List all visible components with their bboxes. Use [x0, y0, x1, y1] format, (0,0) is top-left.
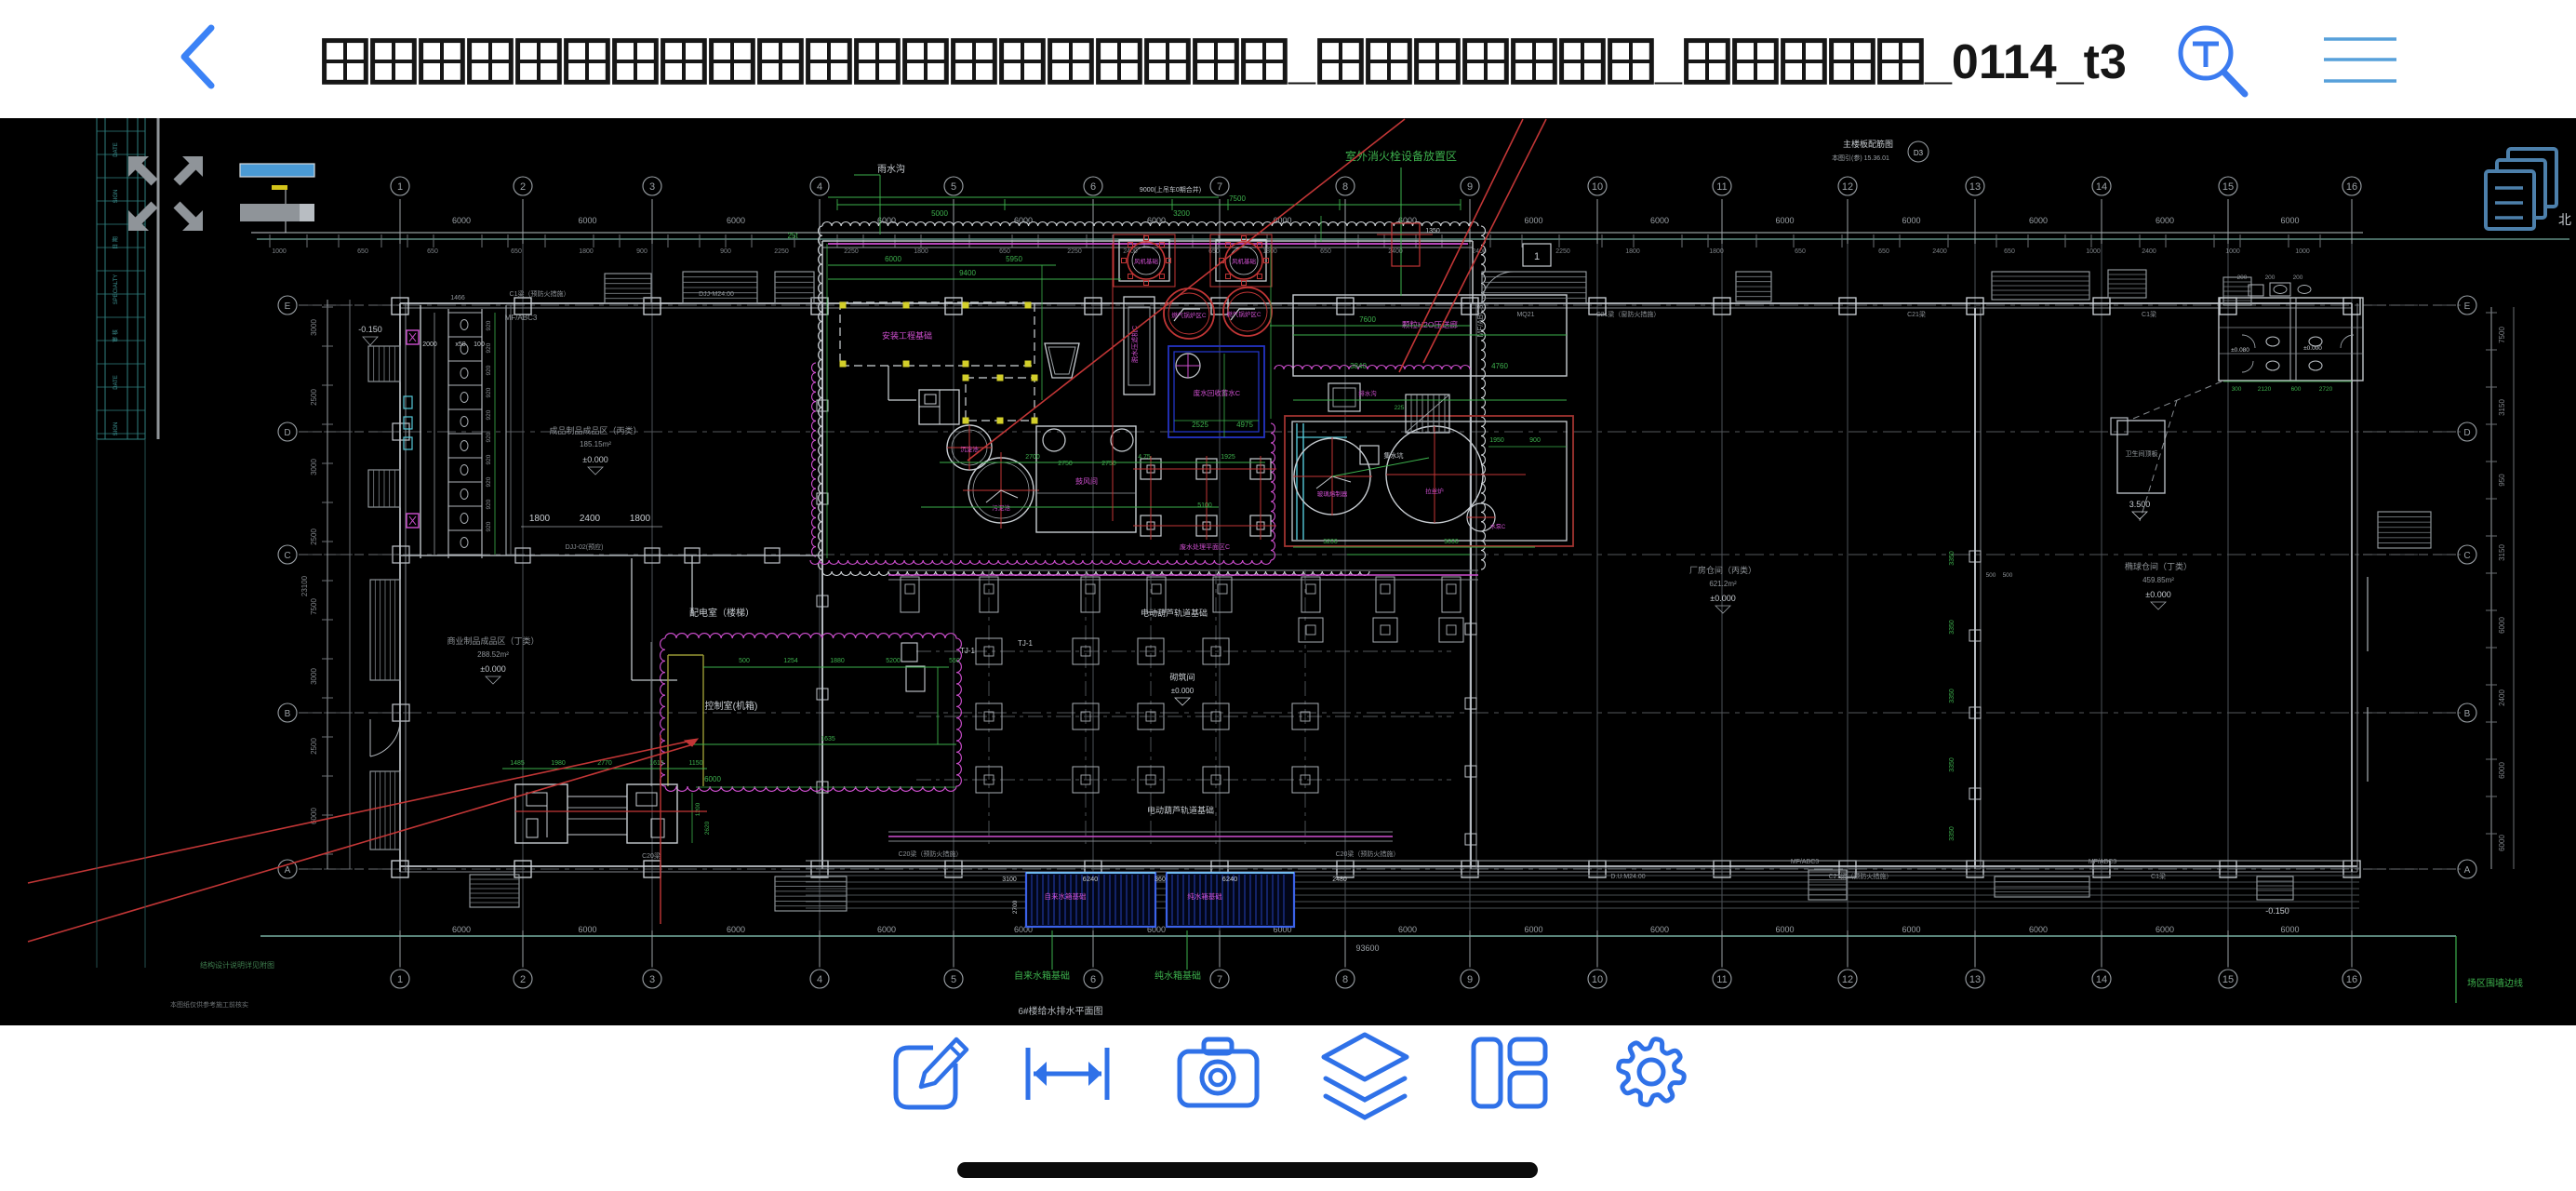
svg-text:1150: 1150 — [688, 760, 702, 767]
svg-text:6000: 6000 — [2498, 835, 2506, 851]
svg-text:DATE: DATE — [113, 375, 119, 390]
svg-text:3350: 3350 — [1949, 620, 1955, 635]
svg-text:3150: 3150 — [2498, 399, 2506, 416]
svg-text:E: E — [285, 301, 291, 312]
svg-text:2120: 2120 — [2258, 386, 2272, 393]
svg-text:6: 6 — [1090, 974, 1096, 985]
svg-text:C21梁（窗防火措施）: C21梁（窗防火措施） — [1596, 310, 1661, 318]
svg-text:3200: 3200 — [1173, 209, 1190, 218]
svg-text:6000: 6000 — [2498, 762, 2506, 779]
svg-text:颗粒H2O压送廊: 颗粒H2O压送廊 — [1402, 320, 1458, 329]
svg-text:废水处理平面区C: 废水处理平面区C — [1180, 542, 1230, 551]
svg-text:2500: 2500 — [310, 738, 318, 755]
svg-text:审 核: 审 核 — [112, 329, 119, 342]
svg-text:风机基础: 风机基础 — [1134, 257, 1159, 265]
svg-text:x50: x50 — [455, 341, 465, 348]
svg-text:拉丝炉: 拉丝炉 — [1425, 487, 1444, 495]
svg-text:4760: 4760 — [1491, 362, 1508, 370]
svg-text:920: 920 — [486, 432, 492, 442]
svg-text:1466: 1466 — [450, 295, 465, 301]
svg-text:±0.000: ±0.000 — [582, 455, 607, 464]
svg-text:920: 920 — [486, 499, 492, 509]
svg-text:废水回收蓄水C: 废水回收蓄水C — [1194, 388, 1241, 397]
svg-text:650: 650 — [1795, 248, 1806, 255]
svg-text:4: 4 — [817, 974, 822, 985]
svg-text:7500: 7500 — [2498, 327, 2506, 343]
svg-text:6000: 6000 — [1650, 925, 1669, 934]
svg-text:6000: 6000 — [727, 925, 745, 934]
svg-text:2525: 2525 — [1192, 421, 1208, 429]
svg-text:8: 8 — [1342, 181, 1348, 193]
svg-text:16: 16 — [2346, 181, 2357, 193]
svg-text:2750: 2750 — [1101, 461, 1116, 467]
svg-text:1350: 1350 — [1425, 228, 1440, 234]
svg-text:3000: 3000 — [310, 668, 318, 685]
svg-text:6000: 6000 — [2498, 617, 2506, 634]
svg-text:B: B — [285, 709, 291, 719]
svg-text:4.75: 4.75 — [1138, 454, 1151, 461]
svg-text:900: 900 — [1529, 437, 1541, 444]
svg-text:3150: 3150 — [2498, 544, 2506, 561]
svg-text:2700: 2700 — [1012, 900, 1019, 914]
svg-text:燃气锅炉区C: 燃气锅炉区C — [1226, 310, 1261, 318]
svg-text:2250: 2250 — [1067, 248, 1082, 255]
svg-text:本图纸仅供参考施工前核实: 本图纸仅供参考施工前核实 — [170, 1000, 248, 1009]
svg-text:2500: 2500 — [310, 389, 318, 406]
svg-text:650: 650 — [1878, 248, 1889, 255]
svg-text:鼓风间: 鼓风间 — [1075, 476, 1098, 486]
svg-text:结构设计说明详见附图: 结构设计说明详见附图 — [200, 960, 274, 970]
svg-text:A: A — [2464, 865, 2471, 876]
svg-text:2: 2 — [520, 181, 526, 193]
svg-text:1635: 1635 — [821, 736, 835, 743]
svg-text:6000: 6000 — [1398, 925, 1417, 934]
svg-text:900: 900 — [636, 248, 647, 255]
svg-text:3350: 3350 — [1949, 757, 1955, 772]
svg-text:水泵C: 水泵C — [1490, 523, 1506, 530]
svg-text:C1梁（预防火措施）: C1梁（预防火措施） — [510, 289, 570, 298]
svg-text:14: 14 — [2096, 181, 2107, 193]
svg-text:DATE: DATE — [113, 142, 119, 157]
svg-text:±0.000: ±0.000 — [1171, 687, 1195, 695]
svg-text:沉淀池: 沉淀池 — [960, 445, 979, 453]
svg-text:500: 500 — [739, 658, 750, 664]
svg-text:185.15m²: 185.15m² — [580, 440, 611, 448]
svg-text:6000: 6000 — [578, 925, 596, 934]
svg-text:12: 12 — [1842, 974, 1853, 985]
svg-text:6000: 6000 — [704, 775, 721, 783]
svg-text:6000: 6000 — [578, 216, 596, 225]
svg-text:650: 650 — [427, 248, 438, 255]
svg-text:2770: 2770 — [597, 760, 612, 767]
svg-text:1: 1 — [1534, 251, 1540, 262]
svg-text:2750: 2750 — [1058, 461, 1073, 467]
svg-text:2250: 2250 — [1555, 248, 1570, 255]
svg-text:TJ-1: TJ-1 — [960, 647, 976, 655]
svg-text:15: 15 — [2222, 181, 2234, 193]
svg-text:3.500: 3.500 — [2129, 500, 2151, 509]
svg-text:±0.000: ±0.000 — [2145, 590, 2170, 599]
svg-text:1800: 1800 — [1625, 248, 1640, 255]
svg-text:3350: 3350 — [1949, 689, 1955, 703]
svg-text:10: 10 — [1592, 974, 1603, 985]
svg-text:550: 550 — [949, 658, 960, 664]
svg-text:6000: 6000 — [1524, 925, 1542, 934]
svg-text:C20梁: C20梁 — [642, 851, 661, 860]
svg-text:污泥池: 污泥池 — [992, 503, 1010, 512]
svg-text:14: 14 — [2096, 974, 2107, 985]
svg-text:650: 650 — [2004, 248, 2015, 255]
svg-text:MQ21: MQ21 — [1516, 312, 1534, 318]
svg-text:1800: 1800 — [529, 514, 551, 524]
svg-text:1254: 1254 — [783, 658, 798, 664]
svg-text:13: 13 — [1969, 974, 1981, 985]
svg-text:6000: 6000 — [877, 925, 896, 934]
svg-text:5000: 5000 — [1444, 539, 1459, 545]
svg-text:±0.000: ±0.000 — [2303, 345, 2322, 352]
svg-text:C: C — [2463, 551, 2470, 561]
svg-text:DJJ-02(预应): DJJ-02(预应) — [566, 542, 604, 551]
svg-text:7: 7 — [1217, 974, 1222, 985]
svg-text:5200: 5200 — [886, 658, 901, 664]
svg-text:±0.000: ±0.000 — [1710, 594, 1735, 603]
svg-text:1800: 1800 — [1262, 248, 1277, 255]
svg-text:6000: 6000 — [2029, 216, 2048, 225]
svg-text:300: 300 — [2232, 386, 2242, 393]
svg-text:3350: 3350 — [1949, 826, 1955, 841]
svg-text:1800: 1800 — [579, 248, 594, 255]
svg-text:1485: 1485 — [510, 760, 525, 767]
svg-text:11: 11 — [1716, 181, 1727, 193]
svg-text:1000: 1000 — [2086, 248, 2101, 255]
svg-text:C20梁（预防火措施）: C20梁（预防火措施） — [899, 850, 963, 858]
svg-text:920: 920 — [486, 454, 492, 464]
svg-text:2400: 2400 — [2498, 689, 2506, 706]
svg-text:3000: 3000 — [310, 459, 318, 475]
svg-text:SIGN: SIGN — [113, 190, 119, 204]
svg-text:5100: 5100 — [1197, 502, 1212, 509]
svg-text:920: 920 — [486, 387, 492, 397]
svg-text:成品制品成品区（丙类）: 成品制品成品区（丙类） — [549, 425, 641, 435]
svg-text:商业制品成品区（丁类）: 商业制品成品区（丁类） — [447, 636, 539, 646]
svg-text:2: 2 — [520, 974, 526, 985]
svg-text:椭球仓间（丁类）: 椭球仓间（丁类） — [2125, 561, 2192, 571]
svg-text:25t: 25t — [787, 232, 798, 240]
svg-text:C21梁（预防火措施）: C21梁（预防火措施） — [1829, 872, 1893, 880]
svg-text:6240: 6240 — [1222, 875, 1238, 883]
svg-text:920: 920 — [486, 365, 492, 375]
svg-text:16: 16 — [2346, 974, 2357, 985]
svg-text:6#楼给水排水平面图: 6#楼给水排水平面图 — [1018, 1005, 1102, 1017]
svg-text:集水坑: 集水坑 — [1384, 451, 1404, 460]
svg-text:920: 920 — [486, 409, 492, 420]
svg-text:6000: 6000 — [2156, 216, 2174, 225]
svg-text:900: 900 — [720, 248, 731, 255]
svg-text:2700: 2700 — [1025, 454, 1040, 461]
svg-text:TJ-1: TJ-1 — [1018, 639, 1034, 648]
svg-text:6000: 6000 — [2280, 216, 2299, 225]
svg-text:500: 500 — [1986, 572, 1996, 579]
svg-text:6000: 6000 — [452, 216, 471, 225]
svg-text:2250: 2250 — [774, 248, 789, 255]
svg-text:10: 10 — [1592, 181, 1603, 193]
svg-text:6000: 6000 — [2156, 925, 2174, 934]
svg-text:7500: 7500 — [1229, 194, 1246, 203]
svg-text:288.52m²: 288.52m² — [477, 650, 509, 659]
svg-text:3: 3 — [649, 181, 655, 193]
svg-text:600: 600 — [2291, 386, 2302, 393]
svg-text:1925: 1925 — [1221, 454, 1235, 461]
svg-text:MF/ABC3: MF/ABC3 — [505, 314, 538, 322]
svg-text:1800: 1800 — [1709, 248, 1724, 255]
svg-text:7: 7 — [1217, 181, 1222, 193]
svg-text:室外消火栓设备放置区: 室外消火栓设备放置区 — [1345, 149, 1457, 163]
svg-text:3100: 3100 — [1002, 877, 1017, 883]
svg-text:4975: 4975 — [1236, 421, 1253, 429]
svg-text:2720: 2720 — [2319, 386, 2333, 393]
svg-text:配电室（楼梯）: 配电室（楼梯） — [689, 607, 754, 619]
svg-text:3350: 3350 — [1949, 551, 1955, 566]
svg-text:1000: 1000 — [2225, 248, 2240, 255]
svg-text:5950: 5950 — [1006, 255, 1022, 263]
svg-text:砌筑间: 砌筑间 — [1169, 672, 1195, 682]
svg-text:风机基础: 风机基础 — [1232, 257, 1257, 265]
svg-text:100: 100 — [474, 341, 485, 348]
svg-text:6000: 6000 — [1902, 925, 1920, 934]
svg-text:1880: 1880 — [830, 658, 845, 664]
svg-text:自来水箱基础: 自来水箱基础 — [1045, 891, 1087, 901]
svg-text:卫生间顶板: 卫生间顶板 — [2126, 449, 2158, 458]
svg-text:1: 1 — [397, 181, 403, 193]
svg-text:B: B — [2464, 709, 2471, 719]
svg-text:920: 920 — [486, 476, 492, 487]
svg-text:E: E — [2464, 301, 2471, 312]
svg-text:950: 950 — [2498, 474, 2506, 487]
svg-text:MF/ABC3: MF/ABC3 — [2089, 859, 2116, 865]
svg-text:6000: 6000 — [2029, 925, 2048, 934]
svg-text:93600: 93600 — [1355, 943, 1379, 953]
svg-text:MF/ABC3: MF/ABC3 — [1791, 859, 1819, 865]
svg-text:9: 9 — [1467, 974, 1473, 985]
svg-text:5: 5 — [951, 181, 956, 193]
svg-text:920: 920 — [486, 521, 492, 531]
svg-text:6000: 6000 — [1524, 216, 1542, 225]
svg-text:2250: 2250 — [844, 248, 859, 255]
svg-text:360: 360 — [1155, 877, 1166, 883]
svg-text:6000: 6000 — [727, 216, 745, 225]
svg-text:650: 650 — [357, 248, 368, 255]
svg-text:12: 12 — [1842, 181, 1853, 193]
svg-text:9: 9 — [1467, 181, 1473, 193]
svg-text:燃气锅炉区C: 燃气锅炉区C — [1171, 311, 1207, 319]
svg-text:5000: 5000 — [931, 209, 948, 218]
svg-text:650: 650 — [1320, 248, 1331, 255]
svg-text:459.85m²: 459.85m² — [2142, 576, 2174, 584]
svg-text:9000(上吊车0期合并): 9000(上吊车0期合并) — [1140, 185, 1201, 194]
svg-text:4: 4 — [817, 181, 822, 193]
svg-text:920: 920 — [486, 320, 492, 330]
svg-text:2500: 2500 — [310, 529, 318, 545]
svg-text:2400: 2400 — [2142, 248, 2156, 255]
svg-text:200: 200 — [2265, 274, 2276, 281]
svg-text:6000: 6000 — [1650, 216, 1669, 225]
svg-text:场区围墙边线: 场区围墙边线 — [2467, 977, 2523, 989]
svg-text:自来水箱基础: 自来水箱基础 — [1014, 970, 1070, 982]
svg-text:C1梁: C1梁 — [2151, 872, 2166, 880]
svg-text:C1梁: C1梁 — [2142, 310, 2156, 318]
svg-text:安装工程基础: 安装工程基础 — [882, 330, 932, 341]
svg-text:玻璃熔制器: 玻璃熔制器 — [1317, 489, 1348, 498]
svg-text:11: 11 — [1716, 974, 1727, 985]
svg-text:本图引(参) 15.36.01: 本图引(参) 15.36.01 — [1832, 154, 1889, 162]
svg-text:225: 225 — [1395, 405, 1405, 411]
svg-text:3200: 3200 — [1323, 539, 1338, 545]
svg-text:脱水压滤机C: 脱水压滤机C — [1130, 326, 1139, 363]
svg-text:7500: 7500 — [310, 598, 318, 615]
svg-text:控制室(机箱): 控制室(机箱) — [705, 700, 758, 712]
svg-text:±0.080: ±0.080 — [2231, 347, 2249, 354]
svg-text:C: C — [284, 551, 290, 561]
svg-text:3000: 3000 — [310, 319, 318, 336]
svg-text:1800: 1800 — [630, 514, 651, 524]
svg-text:2000: 2000 — [422, 341, 437, 348]
svg-text:2620: 2620 — [704, 821, 711, 835]
svg-text:2480: 2480 — [1332, 877, 1347, 883]
svg-text:北: 北 — [2558, 212, 2571, 227]
svg-text:纯水箱基础: 纯水箱基础 — [1187, 891, 1222, 901]
svg-text:电动葫芦轨道基础: 电动葫芦轨道基础 — [1147, 805, 1214, 815]
svg-text:6000: 6000 — [1902, 216, 1920, 225]
svg-text:8: 8 — [1342, 974, 1348, 985]
svg-text:1: 1 — [397, 974, 403, 985]
svg-text:500: 500 — [2003, 572, 2013, 579]
svg-text:1950: 1950 — [1489, 437, 1504, 444]
svg-text:9400: 9400 — [959, 269, 976, 277]
svg-text:±0.000: ±0.000 — [480, 664, 505, 674]
svg-text:6000: 6000 — [2280, 925, 2299, 934]
svg-text:C20梁（预防火措施）: C20梁（预防火措施） — [1336, 850, 1400, 858]
svg-text:D: D — [2463, 428, 2470, 438]
svg-text:5: 5 — [951, 974, 956, 985]
svg-text:1980: 1980 — [551, 760, 566, 767]
svg-text:3840: 3840 — [1350, 362, 1367, 370]
svg-text:6: 6 — [1090, 181, 1096, 193]
svg-text:C21梁: C21梁 — [1907, 310, 1926, 318]
svg-text:200: 200 — [2237, 274, 2248, 281]
svg-text:23100: 23100 — [300, 575, 309, 596]
svg-text:厂房仓间（丙类）: 厂房仓间（丙类） — [1689, 565, 1756, 575]
svg-text:DJJ-M24.00: DJJ-M24.00 — [699, 291, 734, 298]
svg-text:1000: 1000 — [2295, 248, 2310, 255]
svg-text:2400: 2400 — [1932, 248, 1947, 255]
svg-text:2400: 2400 — [580, 514, 601, 524]
svg-text:1000: 1000 — [272, 248, 287, 255]
svg-text:650: 650 — [511, 248, 522, 255]
svg-text:D3: D3 — [1914, 149, 1924, 157]
svg-text:7600: 7600 — [1359, 315, 1376, 324]
svg-text:主楼板配筋图: 主楼板配筋图 — [1843, 139, 1893, 149]
svg-text:6000: 6000 — [1775, 925, 1794, 934]
svg-text:SIGN: SIGN — [113, 422, 119, 436]
svg-text:-0.150: -0.150 — [2265, 906, 2289, 916]
svg-text:日 期: 日 期 — [112, 236, 119, 249]
svg-text:1200: 1200 — [695, 802, 701, 816]
svg-text:-0.150: -0.150 — [358, 325, 382, 334]
svg-text:6000: 6000 — [885, 255, 901, 263]
svg-text:雨水沟: 雨水沟 — [877, 163, 905, 175]
svg-text:13: 13 — [1969, 181, 1981, 193]
svg-text:SPECIALTY: SPECIALTY — [113, 274, 119, 305]
svg-text:纯水箱基础: 纯水箱基础 — [1155, 970, 1201, 982]
svg-text:排水沟: 排水沟 — [1358, 389, 1377, 397]
svg-text:D.U.M24.00: D.U.M24.00 — [1610, 874, 1645, 880]
svg-text:D: D — [284, 428, 290, 438]
svg-text:621.2m²: 621.2m² — [1709, 580, 1737, 588]
svg-text:6000: 6000 — [1775, 216, 1794, 225]
svg-text:920: 920 — [486, 342, 492, 353]
svg-text:200: 200 — [2293, 274, 2303, 281]
svg-text:650: 650 — [999, 248, 1010, 255]
svg-text:A: A — [285, 865, 291, 876]
svg-text:6240: 6240 — [1083, 875, 1099, 883]
svg-text:6000: 6000 — [452, 925, 471, 934]
svg-text:3: 3 — [649, 974, 655, 985]
svg-text:1800: 1800 — [914, 248, 928, 255]
svg-text:15: 15 — [2222, 974, 2234, 985]
svg-text:1615: 1615 — [649, 760, 664, 767]
